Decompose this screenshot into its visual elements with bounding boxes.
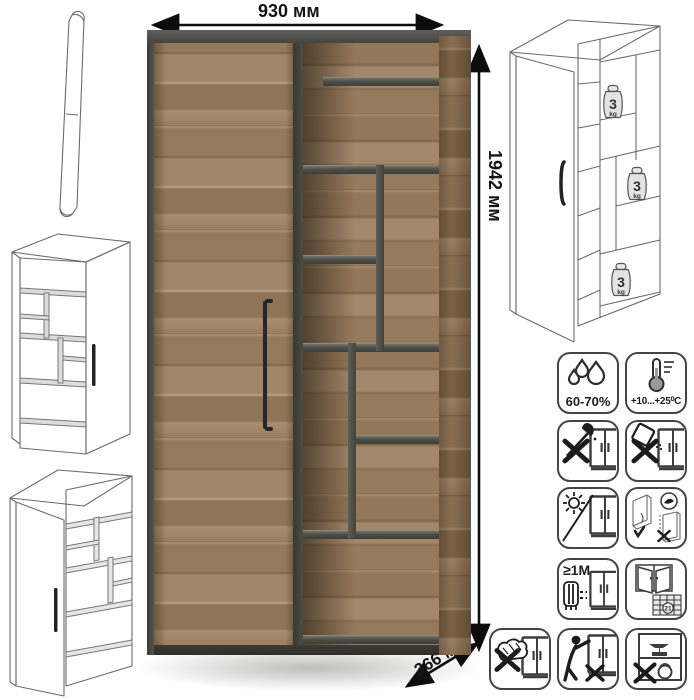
kettlebell-glyph [659,664,672,679]
open-shelf-unit [303,43,439,645]
cabinet-left-edge [147,43,154,655]
temperature-icon-cell: +10...+25⁰C [625,352,687,414]
humidity-icon-cell: 60-70% [557,352,619,414]
temperature-caption: +10...+25⁰C [627,396,685,407]
door-handle-drawing [22,6,117,234]
no-liquid-spill-icon [627,422,684,479]
shelf [303,343,439,352]
no-heavy-overload-icon-cell [625,628,687,690]
product-infographic: 930 мм 1942 мм 366 мм [0,0,694,700]
cabinet-center-partition [293,43,303,645]
heat-source-distance-icon-cell: ≥1M [557,558,619,620]
thermometer-icon [628,356,684,394]
ventilation-window-icon: 21 [627,560,684,617]
shelf [303,255,376,264]
svg-text:3: 3 [633,178,641,194]
width-dimension-label: 930 мм [258,1,320,22]
no-abrasive-sponge-icon-cell [489,628,551,690]
no-direct-sunlight-icon-cell [557,487,619,549]
ventilation-days-badge: 21 [664,606,672,613]
wardrobe-sketch-mirrored [0,226,138,464]
shelf [348,435,439,444]
shelf-divider [348,343,356,538]
cabinet-photo [147,30,471,663]
no-axe-impact-icon-cell [557,420,619,482]
svg-text:kg: kg [617,289,625,296]
door-handle [263,301,267,429]
humidity-caption: 60-70% [559,394,617,409]
water-drops-icon [560,356,616,394]
no-pulling-tipping-icon [559,630,616,687]
cabinet-top-panel [147,30,471,43]
svg-text:kg: kg [609,111,617,118]
cabinet-side-panel [439,36,471,655]
no-axe-impact-icon [559,422,616,479]
shelf-load-badge: 3 kg [604,86,623,119]
no-heavy-overload-icon [627,630,684,687]
shelf [323,77,439,86]
internal-structure-sketch: 3 kg 3 kg 3 kg [496,10,672,344]
shelf-divider [376,165,384,351]
cabinet-base [154,645,439,655]
distance-caption: ≥1M [563,562,590,578]
shelf-load-badge: 3 kg [612,264,631,297]
svg-text:3: 3 [617,274,625,290]
no-abrasive-sponge-icon [491,630,548,687]
no-direct-sunlight-icon [559,489,616,546]
shelf [303,635,439,644]
ventilation-window-icon-cell: 21 [625,558,687,620]
no-liquid-spill-icon-cell [625,420,687,482]
transport-position-icon [627,489,684,546]
shelf-load-badge: 3 kg [628,168,647,201]
wardrobe-sketch-front [0,460,140,700]
shelf [303,165,439,174]
transport-position-icon-cell [625,487,687,549]
svg-text:3: 3 [609,96,617,112]
no-pulling-tipping-icon-cell [557,628,619,690]
svg-text:kg: kg [633,193,641,200]
shelf [303,530,439,539]
cabinet-door [154,43,293,645]
